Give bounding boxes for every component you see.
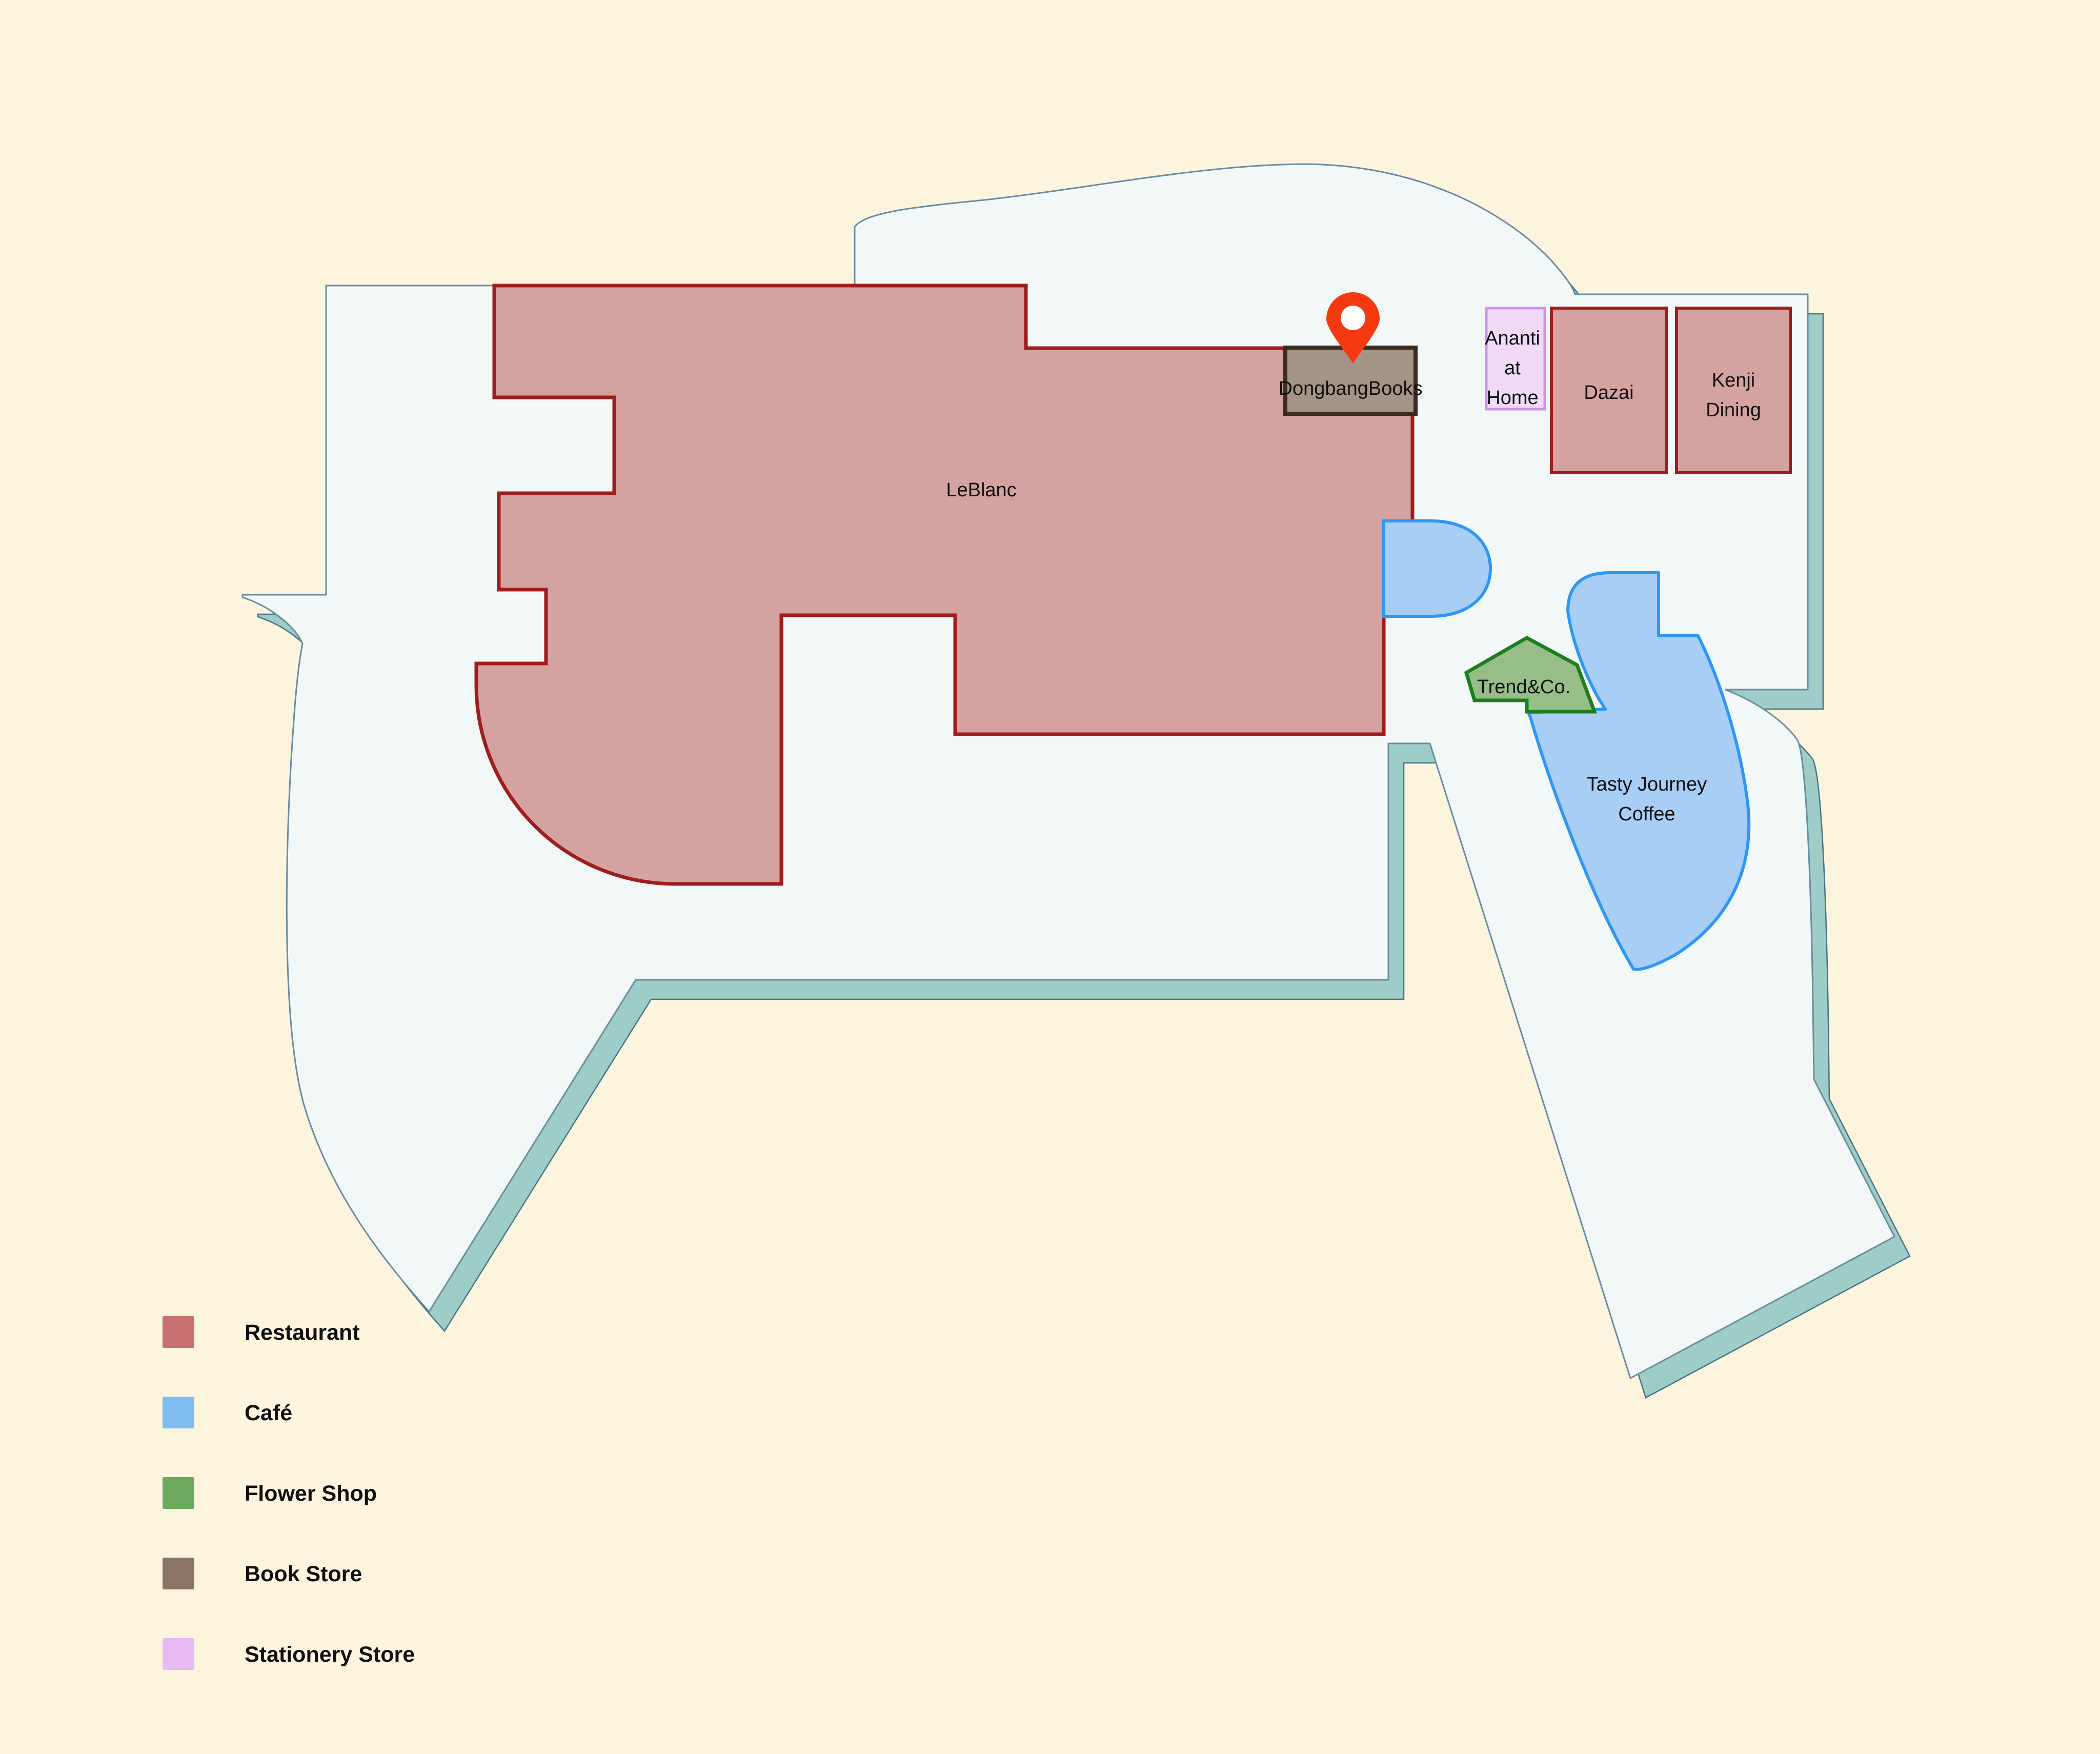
- label-ananti-line1: Ananti: [1485, 328, 1540, 349]
- label-dongbang-books: DongbangBooks: [1279, 378, 1423, 399]
- legend-swatch-cafe: [163, 1397, 194, 1428]
- label-kenji-line1: Kenji: [1712, 370, 1755, 391]
- legend-label-cafe: Café: [245, 1401, 292, 1425]
- label-leblanc: LeBlanc: [946, 479, 1016, 501]
- label-ananti-line2: at: [1504, 357, 1521, 379]
- legend-item-restaurant: Restaurant: [163, 1316, 360, 1348]
- label-kenji-line2: Dining: [1706, 399, 1761, 421]
- mall-floor-map: LeBlanc DongbangBooks Ananti at Home Daz…: [0, 0, 2100, 1754]
- legend-item-book-store: Book Store: [163, 1558, 362, 1589]
- label-dazai: Dazai: [1584, 382, 1633, 404]
- legend-swatch-restaurant: [163, 1316, 194, 1348]
- legend-swatch-flower-shop: [163, 1477, 194, 1509]
- legend-label-flower-shop: Flower Shop: [245, 1481, 377, 1506]
- legend-label-restaurant: Restaurant: [245, 1320, 360, 1345]
- legend-swatch-stationery-store: [163, 1638, 194, 1670]
- legend-label-stationery-store: Stationery Store: [245, 1642, 415, 1667]
- label-ananti-line3: Home: [1486, 387, 1538, 409]
- store-cafe-small[interactable]: [1384, 521, 1490, 616]
- pin-hole: [1341, 306, 1365, 330]
- legend-swatch-book-store: [163, 1558, 194, 1589]
- label-tasty-line2: Coffee: [1618, 803, 1675, 825]
- label-trend-co: Trend&Co.: [1477, 676, 1570, 698]
- label-tasty-line1: Tasty Journey: [1587, 774, 1707, 795]
- legend-label-book-store: Book Store: [245, 1562, 362, 1586]
